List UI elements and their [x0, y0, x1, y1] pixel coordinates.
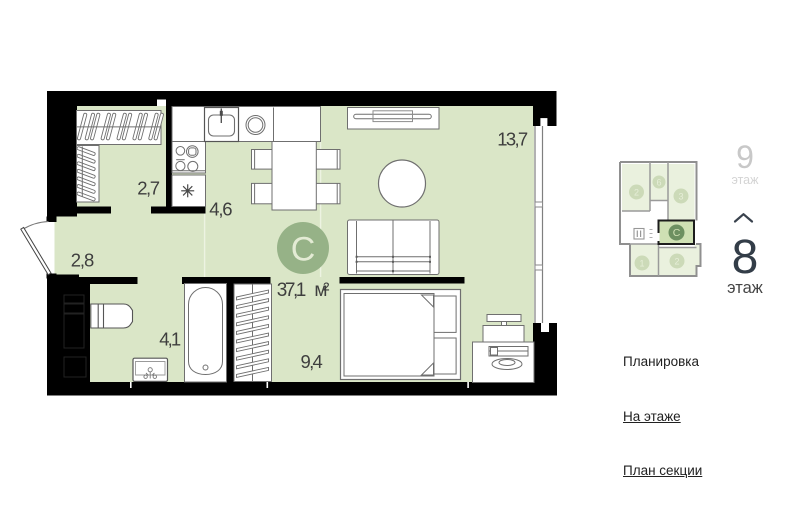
svg-text:2,8: 2,8	[71, 250, 95, 271]
svg-text:1: 1	[639, 259, 644, 269]
svg-text:м²: м²	[314, 280, 329, 301]
svg-text:2: 2	[634, 188, 639, 198]
svg-text:C: C	[291, 231, 316, 269]
svg-text:13,7: 13,7	[497, 129, 528, 150]
svg-text:6: 6	[656, 178, 661, 188]
svg-text:37,1: 37,1	[277, 280, 307, 301]
svg-text:3: 3	[678, 192, 683, 202]
svg-text:4,6: 4,6	[209, 199, 232, 220]
svg-text:C: C	[673, 227, 681, 239]
svg-text:2: 2	[674, 257, 679, 267]
svg-text:2,7: 2,7	[137, 177, 160, 198]
svg-text:9,4: 9,4	[301, 351, 323, 372]
svg-text:4,1: 4,1	[159, 328, 181, 349]
